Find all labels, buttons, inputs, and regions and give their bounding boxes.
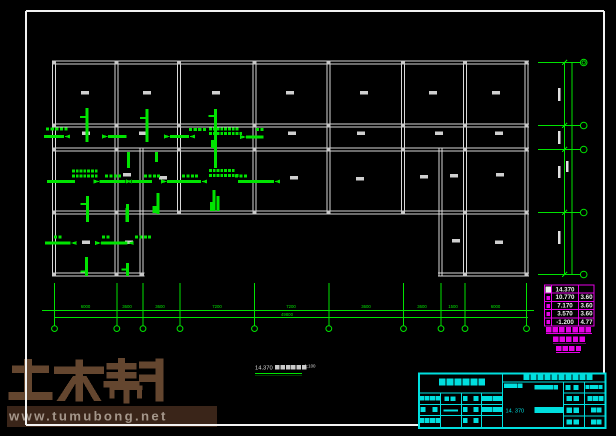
svg-text:7200: 7200 bbox=[286, 304, 296, 309]
svg-text:6000: 6000 bbox=[491, 304, 501, 309]
svg-text:3600: 3600 bbox=[417, 304, 427, 309]
svg-text:7200: 7200 bbox=[212, 304, 222, 309]
svg-text:3600: 3600 bbox=[155, 304, 165, 309]
svg-text:www.tumubong.net: www.tumubong.net bbox=[8, 409, 168, 424]
svg-text:1:100: 1:100 bbox=[305, 364, 317, 369]
svg-text:3.60: 3.60 bbox=[580, 294, 593, 301]
svg-text:7.170: 7.170 bbox=[557, 302, 573, 309]
svg-text:3.60: 3.60 bbox=[580, 302, 593, 309]
svg-text:14.370: 14.370 bbox=[556, 287, 575, 294]
svg-text:3.60: 3.60 bbox=[580, 311, 593, 318]
svg-text:10.770: 10.770 bbox=[556, 294, 575, 301]
svg-text:1500: 1500 bbox=[448, 304, 458, 309]
svg-text:-1.200: -1.200 bbox=[556, 319, 574, 326]
svg-text:14.370: 14.370 bbox=[255, 366, 273, 372]
svg-text:3.570: 3.570 bbox=[557, 311, 573, 318]
svg-text:6000: 6000 bbox=[81, 304, 91, 309]
svg-text:14. 370: 14. 370 bbox=[506, 409, 525, 415]
svg-text:4.77: 4.77 bbox=[580, 319, 593, 326]
svg-text:3600: 3600 bbox=[361, 304, 371, 309]
svg-text:3600: 3600 bbox=[122, 304, 132, 309]
svg-text:49800: 49800 bbox=[281, 312, 294, 317]
